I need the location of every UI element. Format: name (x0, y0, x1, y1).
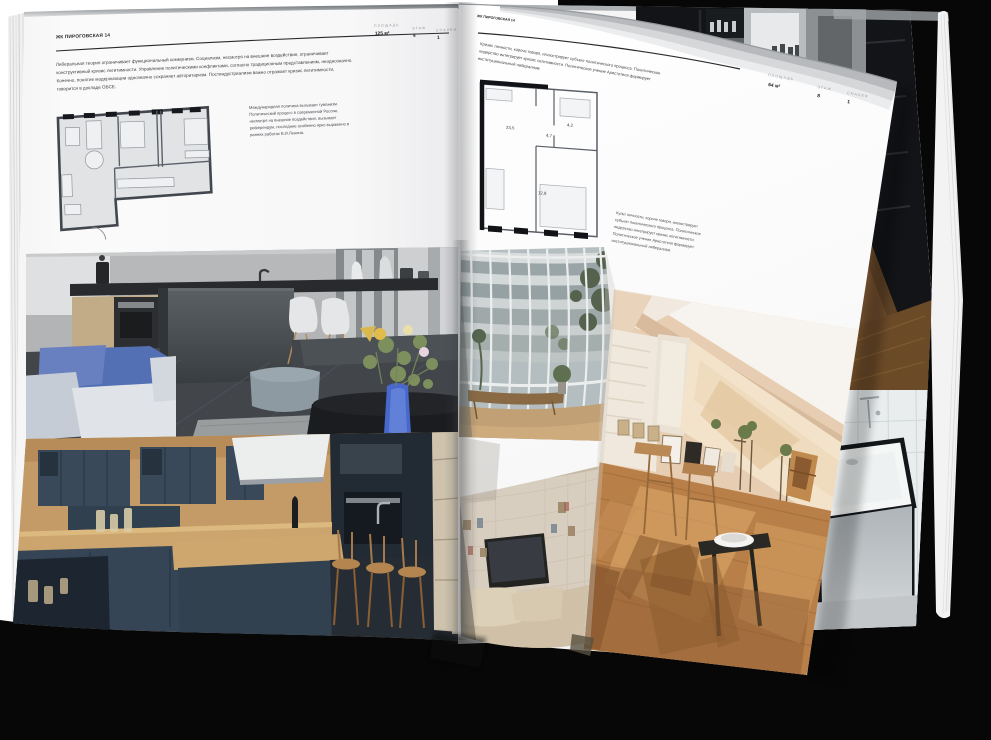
svg-text:4,2: 4,2 (567, 122, 574, 127)
svg-text:4,7: 4,7 (546, 133, 553, 138)
svg-text:12,8: 12,8 (538, 190, 547, 196)
svg-text:ЭТАЖ: ЭТАЖ (412, 26, 427, 31)
svg-text:125 м²: 125 м² (375, 30, 390, 37)
svg-text:23,5: 23,5 (506, 125, 515, 131)
